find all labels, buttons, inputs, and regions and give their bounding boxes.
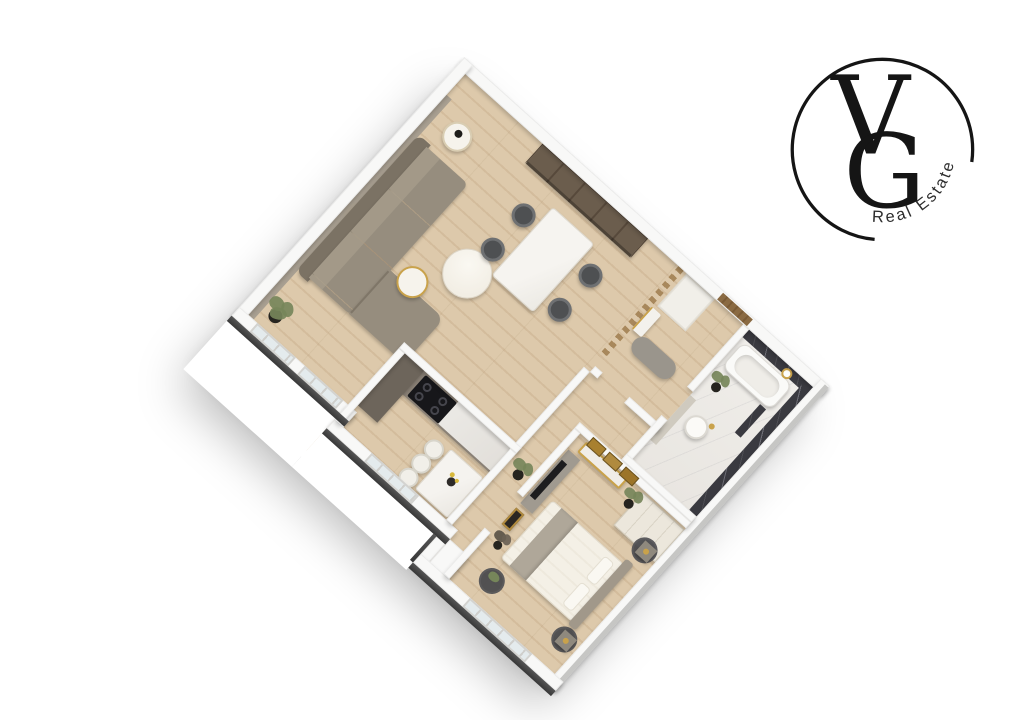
page: V G Real Estate <box>0 0 1027 720</box>
burner-icon <box>436 395 449 408</box>
floorplan-render <box>183 57 830 698</box>
burner-icon <box>428 404 441 417</box>
burner-icon <box>421 381 434 394</box>
vg-real-estate-logo: V G Real Estate <box>780 47 985 252</box>
burner-icon <box>413 390 426 403</box>
